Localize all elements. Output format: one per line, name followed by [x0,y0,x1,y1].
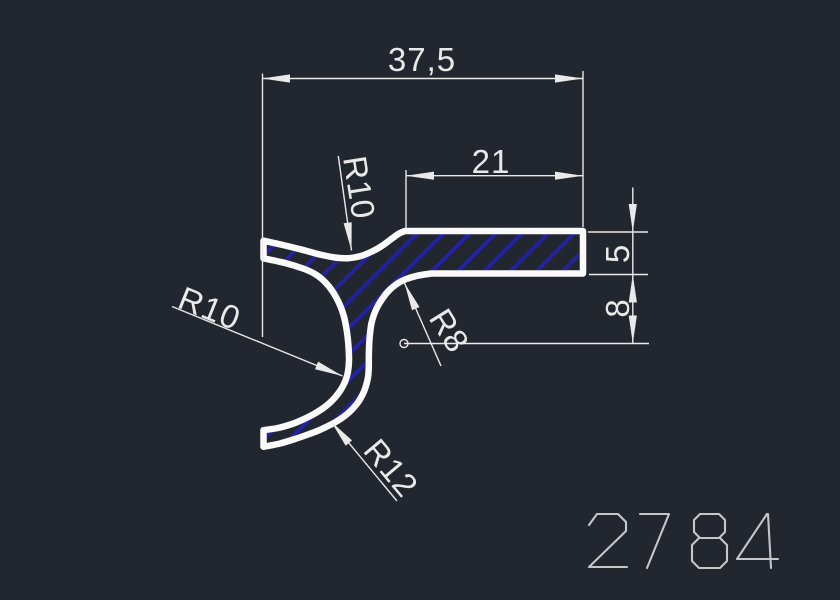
svg-text:5: 5 [599,244,636,263]
svg-text:21: 21 [472,143,511,180]
svg-text:37,5: 37,5 [388,41,456,78]
svg-text:8: 8 [599,298,636,317]
